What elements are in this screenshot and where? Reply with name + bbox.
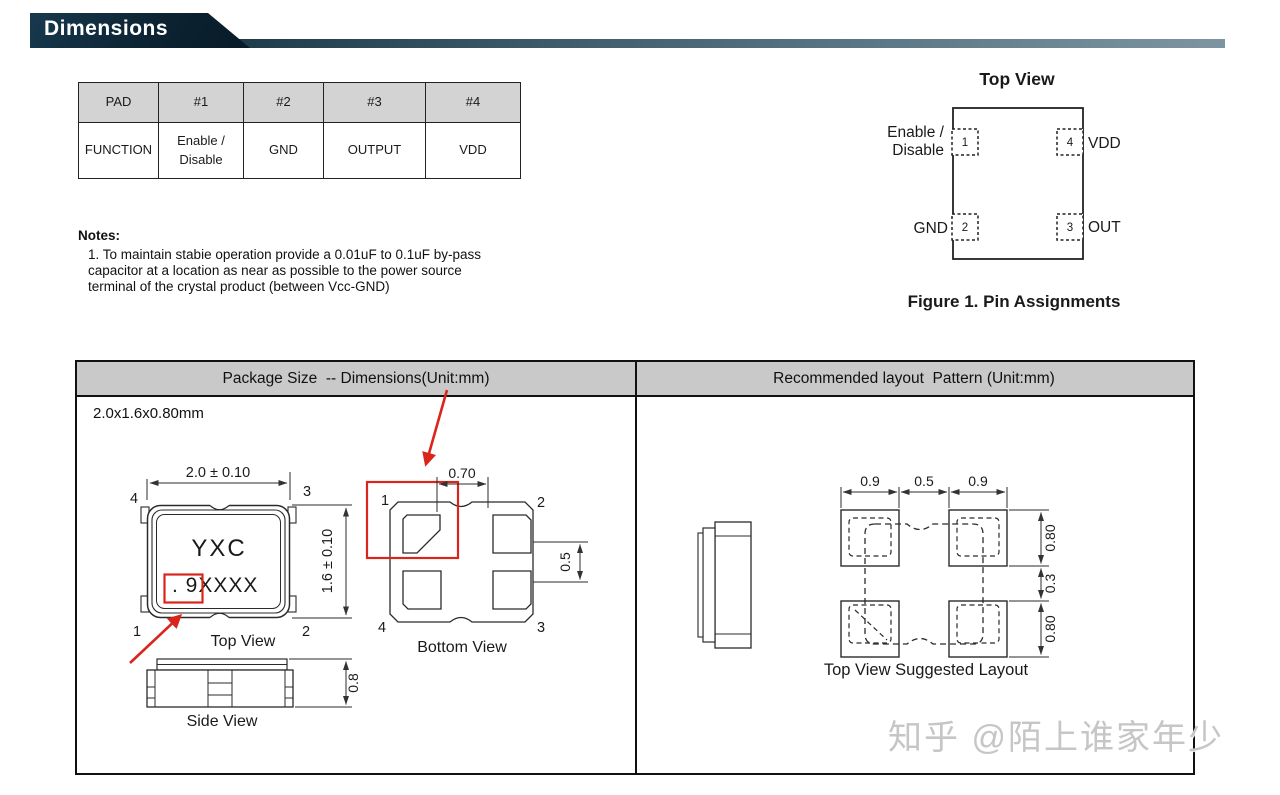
bottom-view-drawing: 0.70 0.5 1 2 4 3 Bottom View bbox=[367, 390, 588, 656]
page-title: Dimensions bbox=[44, 17, 168, 41]
datasheet-page: { "header": { "title": "Dimensions" }, "… bbox=[0, 0, 1280, 795]
pad-function-table: PAD #1 #2 #3 #4 FUNCTION Enable / Disabl… bbox=[78, 82, 521, 179]
pin1-function-line1: Enable / bbox=[177, 132, 225, 151]
thickness-label: 0.8 bbox=[345, 673, 361, 693]
svg-text:4: 4 bbox=[130, 491, 138, 507]
pin-figure-title: Top View bbox=[979, 69, 1055, 89]
svg-text:1: 1 bbox=[381, 493, 389, 509]
height-dimension bbox=[292, 505, 352, 618]
notes-line: terminal of the crystal product (between… bbox=[88, 279, 558, 295]
side-profile-drawing bbox=[698, 522, 751, 648]
package-marking: YXC . 9XXXX bbox=[172, 535, 258, 597]
package-drawings: YXC . 9XXXX 2.0 ± 0.10 1.6 ± 0.10 4 3 1 … bbox=[77, 387, 634, 771]
notes-block: Notes: 1. To maintain stabie operation p… bbox=[78, 228, 558, 295]
table-column-divider bbox=[635, 362, 637, 773]
pin1-indicator-diagonal bbox=[855, 610, 887, 640]
suggested-layout-caption: Top View Suggested Layout bbox=[824, 661, 1029, 679]
pin-pads bbox=[952, 129, 1083, 240]
pin1-pad-highlight-box bbox=[367, 482, 458, 558]
svg-text:2: 2 bbox=[537, 495, 545, 511]
pin-figure-caption: Figure 1. Pin Assignments bbox=[908, 292, 1121, 311]
svg-text:0.80: 0.80 bbox=[1042, 615, 1058, 642]
layout-top-dimensions bbox=[841, 487, 1007, 508]
svg-text:4: 4 bbox=[378, 620, 386, 636]
side-view-caption: Side View bbox=[187, 713, 258, 730]
corner-castellations bbox=[141, 507, 296, 612]
svg-text:1: 1 bbox=[962, 137, 968, 149]
pin-numbers: 1 4 2 3 bbox=[962, 137, 1074, 234]
svg-text:Enable /: Enable / bbox=[887, 124, 945, 141]
pin1-mark-highlight-box bbox=[165, 575, 203, 603]
pad-table-header-cell: #1 bbox=[159, 83, 244, 123]
pad-table-header-cell: #2 bbox=[244, 83, 324, 123]
svg-text:0.3: 0.3 bbox=[1042, 574, 1058, 594]
svg-text:2: 2 bbox=[962, 222, 968, 234]
svg-text:GND: GND bbox=[914, 220, 948, 237]
top-view-caption: Top View bbox=[211, 633, 276, 650]
top-view-pin-numbers: 4 3 1 2 bbox=[130, 484, 311, 640]
pad1-chamfered bbox=[403, 515, 440, 553]
svg-text:4: 4 bbox=[1067, 137, 1074, 149]
notes-heading: Notes: bbox=[78, 228, 558, 244]
watermark: 知乎 @陌上谁家年少 bbox=[888, 710, 1224, 759]
svg-text:3: 3 bbox=[303, 484, 311, 500]
pad-table-cell-pin3: OUTPUT bbox=[324, 123, 426, 178]
layout-right-dimension-labels: 0.80 0.3 0.80 bbox=[1042, 524, 1058, 642]
width-dimension bbox=[147, 472, 290, 500]
pin-assignment-figure: Top View 1 4 2 3 Enable / Disable VDD GN… bbox=[860, 60, 1200, 312]
pin-labels: Enable / Disable VDD GND OUT bbox=[887, 124, 1121, 237]
pad-table-cell-pin2: GND bbox=[244, 123, 324, 178]
pad-table-header-cell: #3 bbox=[324, 83, 426, 123]
suggested-layout-drawing: 0.9 0.5 0.9 0.80 0.3 0.80 Top View Sugge… bbox=[824, 473, 1058, 679]
pad-table-header-cell: PAD bbox=[79, 83, 159, 123]
bottom-view-pin-numbers: 1 2 4 3 bbox=[378, 493, 545, 636]
pin1-pad-arrow bbox=[426, 390, 447, 464]
pad-gap-dimension bbox=[533, 542, 588, 582]
marking-code: . 9XXXX bbox=[172, 574, 258, 597]
pad-offset-label: 0.70 bbox=[448, 465, 475, 481]
pad-gap-label: 0.5 bbox=[557, 552, 573, 572]
svg-text:VDD: VDD bbox=[1088, 135, 1121, 152]
layout-right-dimensions bbox=[1009, 510, 1049, 657]
package-outline bbox=[953, 108, 1083, 259]
bottom-view-caption: Bottom View bbox=[417, 639, 507, 656]
land-pads bbox=[841, 510, 1007, 657]
svg-text:0.80: 0.80 bbox=[1042, 524, 1058, 551]
section-header: Dimensions bbox=[30, 13, 1227, 48]
width-dimension-label: 2.0 ± 0.10 bbox=[186, 465, 250, 481]
thickness-dimension bbox=[289, 659, 352, 707]
height-dimension-label: 1.6 ± 0.10 bbox=[320, 529, 336, 593]
package-dashed-outline bbox=[865, 524, 983, 644]
svg-text:0.9: 0.9 bbox=[860, 473, 880, 489]
pin1-mark-arrow bbox=[130, 616, 180, 663]
layout-top-dimension-labels: 0.9 0.5 0.9 bbox=[860, 473, 988, 489]
pad-table-cell-pin4: VDD bbox=[426, 123, 520, 178]
svg-text:Disable: Disable bbox=[892, 142, 944, 159]
svg-text:3: 3 bbox=[537, 620, 545, 636]
header-title-block: Dimensions bbox=[30, 13, 250, 48]
package-size-header: Package Size -- Dimensions(Unit:mm) bbox=[77, 362, 635, 395]
bottom-pads bbox=[403, 515, 531, 609]
pad-table-header-cell: #4 bbox=[426, 83, 520, 123]
top-view-drawing: YXC . 9XXXX 2.0 ± 0.10 1.6 ± 0.10 4 3 1 … bbox=[130, 465, 352, 663]
notes-line: capacitor at a location as near as possi… bbox=[88, 263, 558, 279]
svg-text:2: 2 bbox=[302, 624, 310, 640]
pad-offset-dimension bbox=[437, 477, 488, 512]
pin1-function-line2: Disable bbox=[179, 151, 222, 170]
notes-line: 1. To maintain stabie operation provide … bbox=[88, 247, 558, 263]
package-size-label: 2.0x1.6x0.80mm bbox=[93, 405, 204, 422]
package-dashed-pads bbox=[849, 518, 999, 643]
svg-text:0.5: 0.5 bbox=[914, 473, 934, 489]
svg-text:1: 1 bbox=[133, 624, 141, 640]
svg-text:0.9: 0.9 bbox=[968, 473, 988, 489]
svg-text:OUT: OUT bbox=[1088, 219, 1121, 236]
svg-text:3: 3 bbox=[1067, 222, 1073, 234]
pad-table-cell-pin1: Enable / Disable bbox=[159, 123, 244, 178]
marking-brand: YXC bbox=[191, 535, 246, 562]
side-view-drawing: 0.8 Side View bbox=[147, 659, 361, 730]
layout-pattern-header: Recommended layout Pattern (Unit:mm) bbox=[635, 362, 1193, 395]
pad-table-row-label: FUNCTION bbox=[79, 123, 159, 178]
